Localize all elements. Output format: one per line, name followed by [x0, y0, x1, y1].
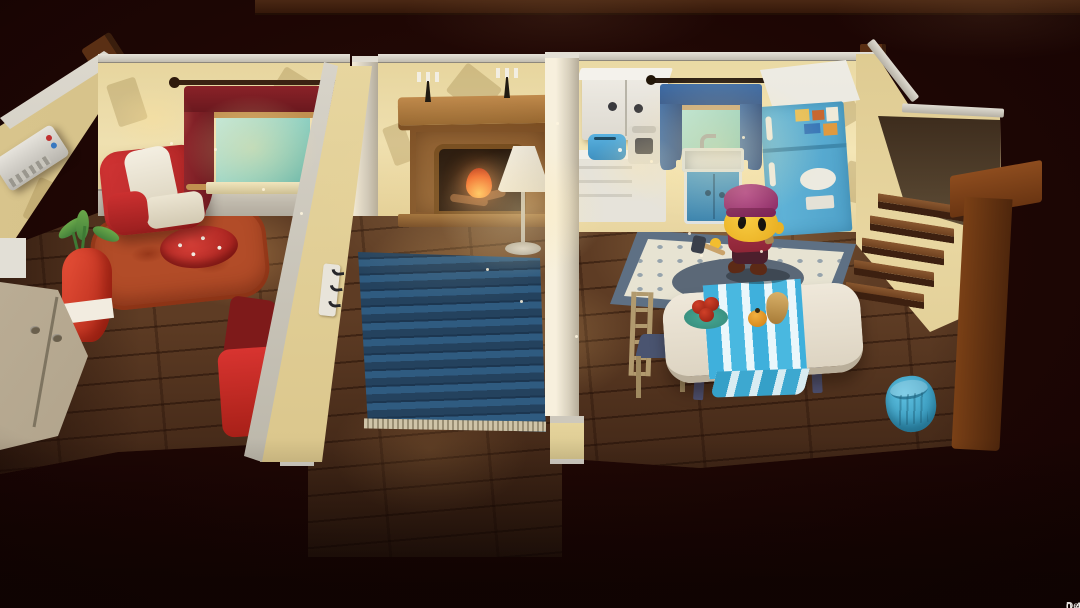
fire-flame: [466, 168, 492, 198]
cabinet-knob: [634, 104, 643, 113]
doorway-wall-right: [550, 416, 584, 464]
chair-leg: [636, 356, 641, 398]
candelabra: [492, 68, 522, 98]
ceiling-light-glow: [400, 0, 720, 60]
wardrobe-knob: [30, 326, 40, 334]
coat-hook: [332, 268, 345, 276]
wallpaper-mark: [106, 76, 148, 127]
sparkle-particles: [214, 148, 217, 151]
fireplace-hearth: [398, 214, 564, 227]
wardrobe-knob: [52, 334, 62, 342]
build-type-label: Development Build: [1066, 600, 1080, 608]
player-character[interactable]: [690, 180, 800, 290]
game-viewport[interactable]: 0.4.8 Development Build: [0, 0, 1080, 608]
floor-lamp-pole: [521, 192, 525, 246]
coffee-maker: [628, 126, 660, 164]
floor-lamp-base: [505, 242, 541, 255]
wallpaper-mark: [22, 177, 64, 228]
curtain-rod: [652, 78, 768, 83]
table-runner-overhang: [710, 368, 809, 397]
armchair-armrest: [106, 190, 150, 232]
kitchen-sink: [682, 148, 744, 172]
toaster: [588, 134, 626, 160]
hammer-icon: [690, 235, 706, 254]
cabinet-knob: [608, 102, 617, 111]
character-beanie: [724, 184, 778, 214]
table-runner: [703, 279, 807, 380]
coat-hook: [330, 284, 343, 292]
kitchen-divider-wall: [545, 52, 579, 416]
fridge-magnets: [795, 106, 845, 143]
fridge-magnet-note: [806, 195, 835, 210]
coat-hook: [328, 300, 341, 308]
white-shelf: [0, 238, 26, 278]
apple: [699, 308, 714, 322]
candelabra: [413, 72, 443, 102]
orange-fruit: [748, 310, 767, 327]
